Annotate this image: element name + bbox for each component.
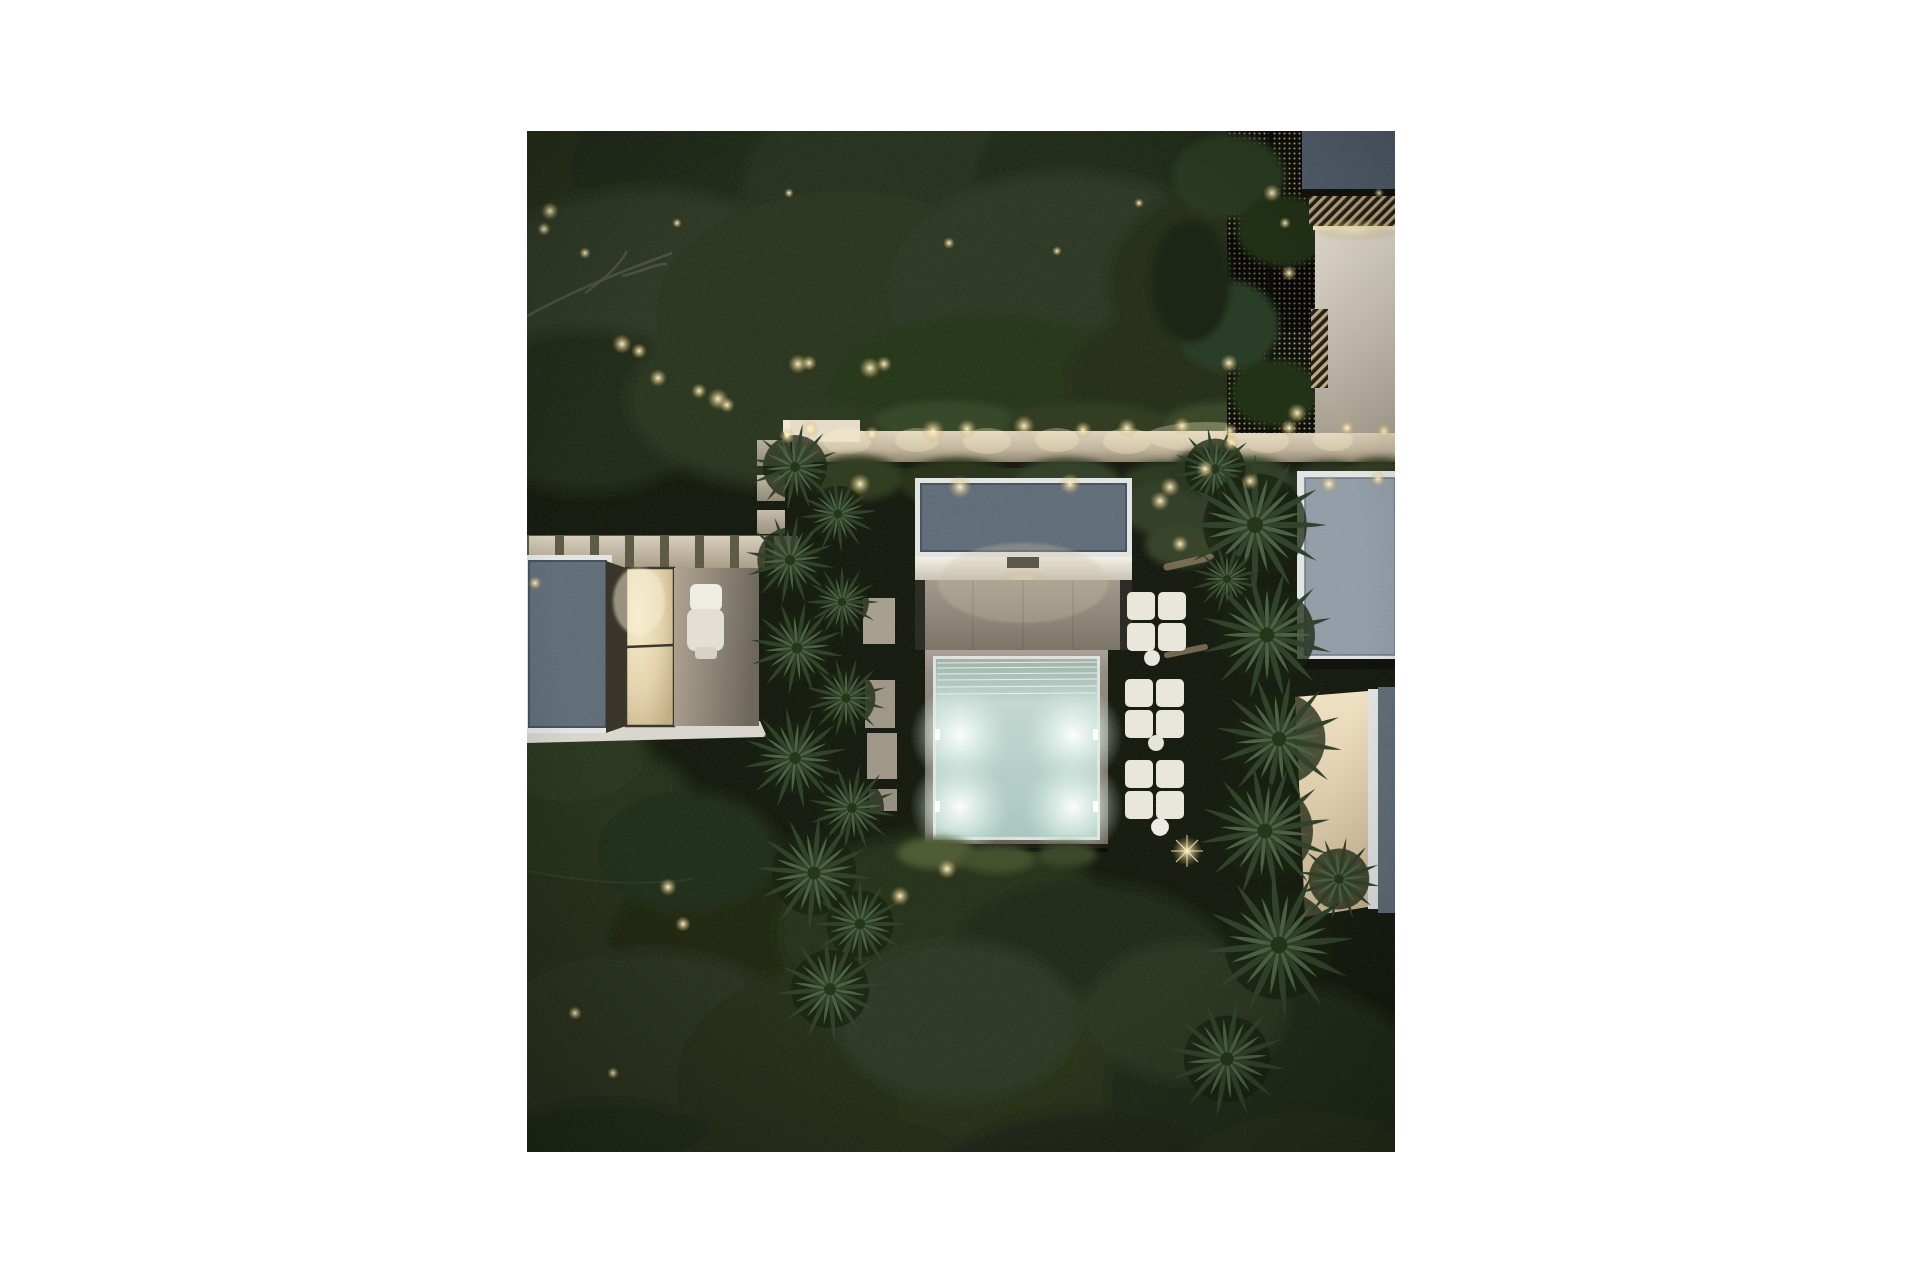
- villa-aerial-scene: [527, 131, 1395, 1152]
- page-canvas: { "artwork": { "label": "Aerial dusk ren…: [0, 0, 1920, 1280]
- villa-aerial-photo: Top-down night-time architectural render…: [527, 131, 1395, 1152]
- vignette-overlay: [527, 131, 1395, 1152]
